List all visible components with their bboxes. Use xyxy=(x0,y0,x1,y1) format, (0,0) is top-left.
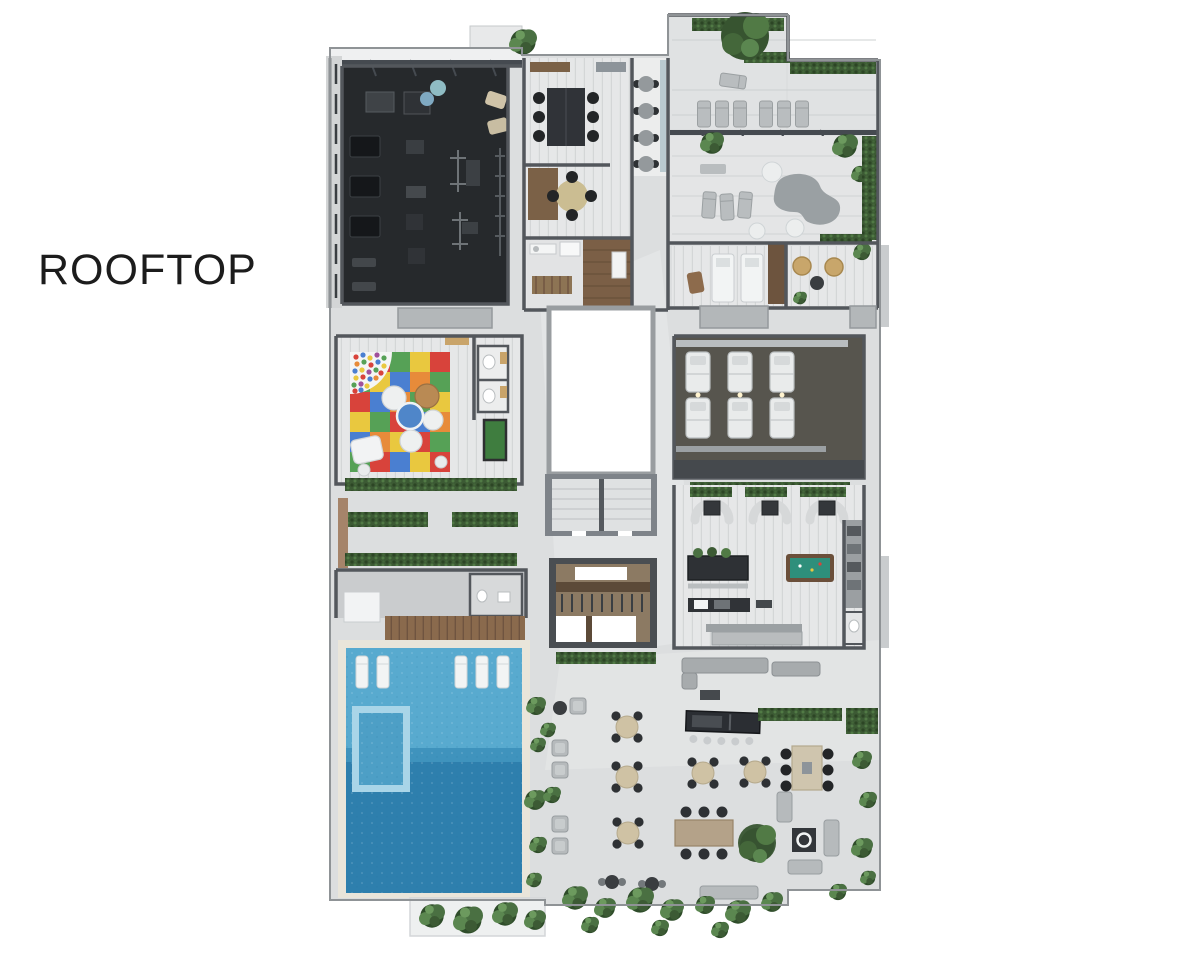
fridge xyxy=(612,252,626,278)
kitchenette xyxy=(527,238,632,310)
elevators xyxy=(545,474,657,536)
rooftop-floorplan-page: ROOFTOP xyxy=(0,0,1200,960)
bench xyxy=(344,592,380,622)
billiard-table xyxy=(786,554,834,582)
bbq-counter xyxy=(685,711,760,747)
gym-area xyxy=(326,29,537,308)
round-rug xyxy=(415,384,439,408)
playroom-wc xyxy=(478,346,508,412)
plush-toy xyxy=(435,456,447,468)
long-dining-table xyxy=(675,807,733,860)
swimming-pool xyxy=(338,640,547,936)
right-ledge-upper xyxy=(880,245,889,327)
plush-toy xyxy=(358,464,370,476)
kids-table xyxy=(397,403,423,429)
jacuzzi xyxy=(352,706,410,792)
stairwell xyxy=(549,558,657,648)
rattan-chair xyxy=(825,258,843,276)
exercise-ball xyxy=(420,92,434,106)
right-ledge-lower xyxy=(880,556,889,648)
kids-playroom xyxy=(336,336,522,491)
communal-table xyxy=(706,624,802,645)
spa-room xyxy=(672,244,786,306)
glass-partition xyxy=(660,60,666,172)
relaxation-room xyxy=(674,336,864,494)
play-turf xyxy=(484,420,506,460)
dining-set-east xyxy=(781,746,834,792)
wood-deck xyxy=(385,616,525,642)
zen-terrace xyxy=(670,132,878,244)
pool-bottom-planter xyxy=(410,898,546,936)
atrium-void xyxy=(549,308,653,474)
rattan-chair xyxy=(793,257,811,275)
central-core xyxy=(545,308,657,664)
bean-bag xyxy=(423,410,443,430)
wardrobe xyxy=(768,244,785,304)
fire-table xyxy=(792,828,816,852)
exercise-ball xyxy=(430,80,446,96)
bean-bag xyxy=(400,430,422,452)
floorplan-rendering xyxy=(0,0,1200,960)
gym-balcony xyxy=(326,56,342,308)
hedge xyxy=(345,478,517,491)
sitting-room xyxy=(788,244,878,306)
shelving xyxy=(844,520,864,644)
side-table xyxy=(810,276,824,290)
corridor xyxy=(674,460,864,478)
hedge xyxy=(556,652,656,664)
terrace-wing xyxy=(668,12,878,308)
tree xyxy=(721,12,769,60)
hedge xyxy=(790,62,876,74)
